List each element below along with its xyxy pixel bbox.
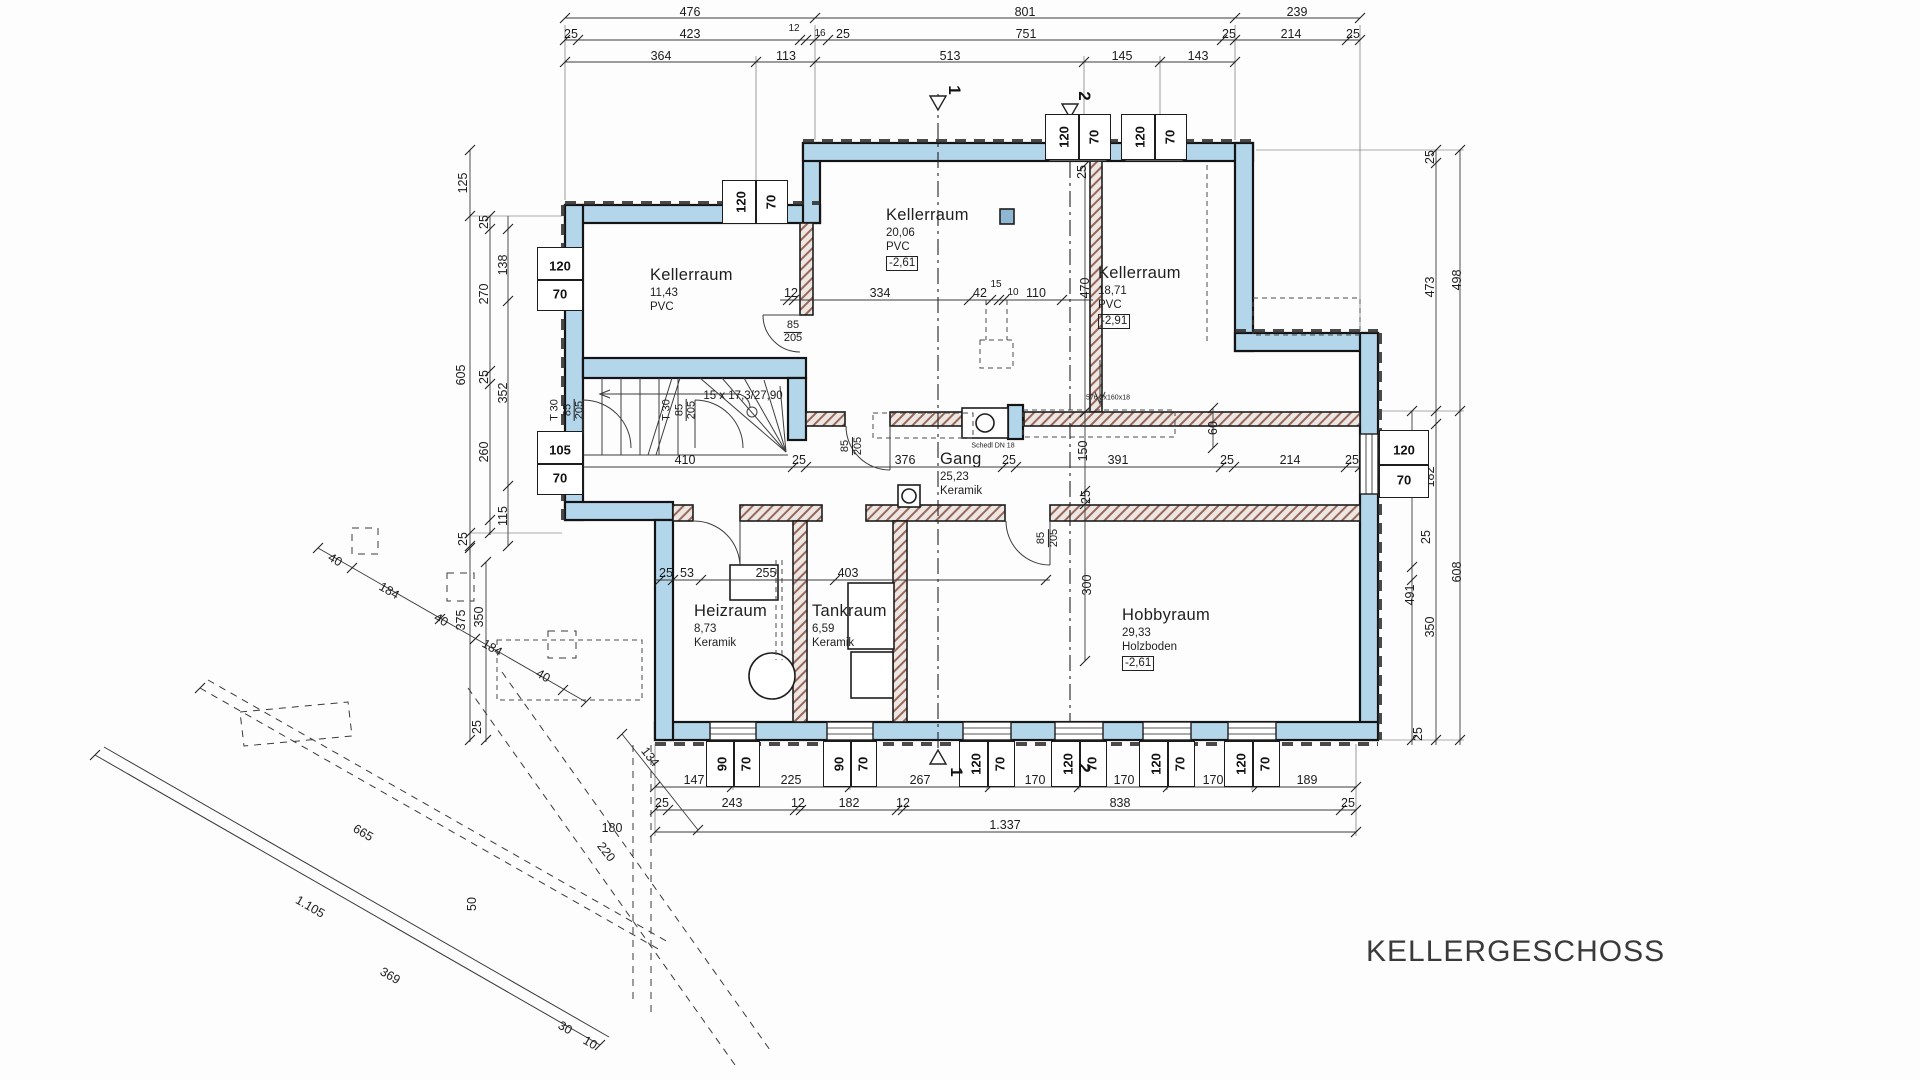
room-area: 29,33 (1122, 627, 1210, 639)
floor-plan-drawing (0, 0, 1920, 1080)
door-size-label: 85205 (1036, 529, 1060, 547)
room-label: Tankraum6,59Keramik (812, 602, 887, 649)
interior-walls (673, 161, 1360, 722)
window-glazing (565, 143, 1378, 740)
dimension-label: 110 (1026, 287, 1046, 300)
dimension-label: 364 (651, 50, 672, 63)
room-name: Kellerraum (650, 266, 733, 285)
dimension-label: 25 (478, 370, 491, 384)
window-size-tag: 12070 (1139, 741, 1195, 787)
dimension-label: 608 (1451, 562, 1464, 583)
room-level-badge: -2,61 (886, 256, 918, 271)
room-name: Heizraum (694, 602, 767, 621)
dimension-label: 25 (1341, 797, 1355, 810)
window-width-label: 120 (968, 753, 983, 775)
dimension-label: 838 (1110, 797, 1131, 810)
dimension-label: 53 (680, 567, 694, 580)
dimension-label: 476 (680, 6, 701, 19)
room-floor: Holzboden (1122, 641, 1210, 653)
door-size-label: 85205 (784, 320, 802, 344)
door-width: 85 (784, 320, 802, 332)
dimension-label: 150 (1077, 441, 1090, 462)
dimension-label: 180 (602, 822, 623, 835)
dimension-label: 25 (1420, 530, 1433, 544)
window-size-tag: 12070 (537, 247, 583, 311)
door-width: 85 (1036, 529, 1048, 547)
dimension-label: 352 (497, 383, 510, 404)
room-name: Tankraum (812, 602, 887, 621)
room-area: 11,43 (650, 287, 733, 299)
room-floor: Keramik (812, 637, 887, 649)
window-width-label: 120 (1060, 753, 1075, 775)
annotation-text: Schedl DN 18 (971, 443, 1014, 450)
window-height-label: 70 (1173, 757, 1188, 771)
section-marker-label: 1 (944, 85, 964, 94)
dimension-label: 25 (792, 454, 806, 467)
door-height: 205 (686, 399, 699, 421)
room-level-badge: -2,91 (1098, 314, 1130, 329)
dimension-label: 170 (1025, 774, 1046, 787)
dimension-label: 25 (478, 215, 491, 229)
window-height-label: 70 (553, 287, 567, 302)
window-size-tag: 12070 (1224, 741, 1280, 787)
window-width-label: 120 (1133, 126, 1148, 148)
dimension-label: 12 (896, 797, 910, 810)
window-width-label: 90 (832, 757, 847, 771)
dimension-label: 255 (756, 567, 777, 580)
window-tag-divider (1380, 464, 1428, 466)
dimension-label: 12 (788, 24, 799, 34)
dimension-label: 473 (1424, 277, 1437, 298)
door-width: 85 (562, 399, 574, 421)
window-tag-divider (755, 181, 757, 223)
dimension-label: 25 (564, 28, 578, 41)
room-name: Kellerraum (1098, 264, 1181, 283)
dimension-label: 143 (1188, 50, 1209, 63)
window-width-label: 90 (715, 757, 730, 771)
dimension-label: 214 (1281, 28, 1302, 41)
annotation-text: 576 2x160x18 (1086, 395, 1130, 402)
window-height-label: 70 (855, 757, 870, 771)
window-tag-divider (538, 463, 582, 465)
dimension-label: 267 (910, 774, 931, 787)
window-size-tag: 9070 (706, 741, 760, 787)
room-level-badge: -2,61 (1122, 656, 1154, 671)
dimension-label: 376 (895, 454, 916, 467)
dimension-label: 25 (1424, 150, 1437, 164)
window-height-label: 70 (553, 471, 567, 486)
window-size-tag: 12070 (1379, 430, 1429, 498)
window-size-tag: 9070 (823, 741, 877, 787)
room-label: Hobbyraum29,33Holzboden-2,61 (1122, 606, 1210, 671)
room-area: 25,23 (940, 471, 982, 483)
window-tag-divider (1154, 115, 1156, 159)
door-height: 205 (1048, 529, 1061, 547)
dimension-label: 260 (478, 442, 491, 463)
dimension-label: 801 (1015, 6, 1036, 19)
room-floor: PVC (886, 241, 969, 253)
room-floor: PVC (1098, 299, 1181, 311)
dimension-label: 403 (838, 567, 859, 580)
room-floor: PVC (650, 301, 733, 313)
dimension-label: 334 (870, 287, 891, 300)
door-height: 205 (852, 437, 865, 455)
window-height-label: 70 (1162, 130, 1177, 144)
dimension-label: 25 (836, 28, 850, 41)
dimension-label: 25 (659, 567, 673, 580)
dimension-label: 12 (791, 797, 805, 810)
window-tag-divider (1078, 115, 1080, 159)
dimension-label: 391 (1108, 454, 1129, 467)
dimension-label: 10 (1007, 288, 1018, 298)
section-marker-label: 2 (1074, 91, 1094, 100)
door-size-label: T 3085205 (662, 399, 699, 421)
dimension-label: 170 (1114, 774, 1135, 787)
dimension-label: 350 (1424, 617, 1437, 638)
door-size-label: 85205 (840, 437, 864, 455)
dimension-label: 147 (684, 774, 705, 787)
room-floor: Keramik (694, 637, 767, 649)
window-width-label: 120 (1057, 126, 1072, 148)
dimension-label: 498 (1451, 270, 1464, 291)
dimension-label: 60 (1207, 421, 1220, 435)
window-tag-divider (1167, 742, 1169, 786)
window-tag-divider (538, 279, 582, 281)
window-size-tag: 12070 (722, 180, 788, 224)
dimension-label: 12 (784, 287, 798, 300)
window-width-label: 120 (549, 258, 571, 273)
dimension-label: 138 (497, 255, 510, 276)
dimension-label: 25 (471, 720, 484, 734)
dimension-label: 25 (1076, 165, 1089, 179)
exterior-walls (565, 143, 1378, 740)
dimension-label: 375 (455, 610, 468, 631)
dimension-label: 25 (1002, 454, 1016, 467)
room-label: Kellerraum11,43PVC (650, 266, 733, 313)
window-tag-divider (733, 742, 735, 786)
dimension-label: 605 (455, 365, 468, 386)
door-width: 85 (840, 437, 852, 455)
room-label: Gang25,23Keramik (940, 450, 982, 497)
dimension-label: 270 (478, 284, 491, 305)
room-name: Gang (940, 450, 982, 469)
dimension-label: 491 (1404, 585, 1417, 606)
door-type: T 30 (550, 399, 562, 421)
dimension-label: 25 (1222, 28, 1236, 41)
dimension-label: 25 (1220, 454, 1234, 467)
dimension-label: 115 (497, 506, 510, 526)
section-line-1 (930, 94, 946, 764)
window-size-tag: 12070 (1121, 114, 1187, 160)
dimension-label: 145 (1112, 50, 1133, 63)
door-height: 205 (574, 399, 587, 421)
door-size-label: T 3085205 (550, 399, 587, 421)
door-type: T 30 (662, 399, 674, 421)
window-height-label: 70 (1397, 472, 1411, 487)
dimension-label: 182 (839, 797, 860, 810)
dimension-label: 170 (1203, 774, 1224, 787)
room-name: Hobbyraum (1122, 606, 1210, 625)
dimension-label: 225 (781, 774, 802, 787)
window-height-label: 70 (738, 757, 753, 771)
dimension-label: 50 (466, 897, 479, 911)
dimension-label: 214 (1280, 454, 1301, 467)
room-area: 6,59 (812, 623, 887, 635)
dimension-label: 42 (973, 287, 987, 300)
window-tag-divider (850, 742, 852, 786)
dimension-label: 25 (655, 797, 669, 810)
window-height-label: 70 (1258, 757, 1273, 771)
dimension-ticks (90, 13, 1465, 1050)
floor-plan-sheet: 4768012392542312162575125214253641135131… (0, 0, 1920, 1080)
section-marker-label: 1 (946, 767, 966, 776)
dimension-label: 25 (1412, 727, 1425, 741)
dimension-label: 25 (1080, 490, 1093, 504)
dimension-label: 300 (1081, 575, 1094, 596)
dimension-label: 470 (1079, 278, 1092, 299)
window-width-label: 105 (549, 442, 571, 457)
window-width-label: 120 (734, 191, 749, 213)
dimension-label: 125 (457, 173, 470, 194)
dimension-label: 350 (473, 607, 486, 628)
dimension-label: 15 (990, 280, 1001, 290)
dimension-label: 25 (1346, 28, 1360, 41)
window-size-tag: 12070 (1045, 114, 1111, 160)
dimension-label: 113 (776, 50, 796, 63)
room-area: 8,73 (694, 623, 767, 635)
window-height-label: 70 (763, 195, 778, 209)
dimension-label: 513 (940, 50, 961, 63)
room-area: 20,06 (886, 227, 969, 239)
dimension-label: 25 (457, 532, 470, 546)
dimension-label: 239 (1287, 6, 1308, 19)
room-label: Kellerraum20,06PVC-2,61 (886, 206, 969, 271)
window-tag-divider (1252, 742, 1254, 786)
room-label: Heizraum8,73Keramik (694, 602, 767, 649)
section-marker-label: 2 (1074, 763, 1094, 772)
window-size-tag: 12070 (959, 741, 1015, 787)
window-size-tag: 10570 (537, 431, 583, 495)
window-width-label: 120 (1233, 753, 1248, 775)
dimension-label: 189 (1297, 774, 1318, 787)
room-label: Kellerraum18,71PVC-2,91 (1098, 264, 1181, 329)
dimension-label: 243 (722, 797, 743, 810)
dimension-label: 16 (814, 29, 825, 39)
window-height-label: 70 (1086, 130, 1101, 144)
window-width-label: 120 (1148, 753, 1163, 775)
door-width: 85 (674, 399, 686, 421)
annotation-text: 15 x 17,3/27,90 (703, 390, 782, 402)
dimension-label: 423 (680, 28, 701, 41)
dimension-label: 25 (1345, 454, 1359, 467)
room-name: Kellerraum (886, 206, 969, 225)
room-floor: Keramik (940, 485, 982, 497)
dimension-label: 751 (1016, 28, 1037, 41)
room-area: 18,71 (1098, 285, 1181, 297)
window-tag-divider (987, 742, 989, 786)
dimension-label: 410 (675, 454, 696, 467)
dimension-label: 1.337 (989, 819, 1020, 832)
window-width-label: 120 (1393, 443, 1415, 458)
window-height-label: 70 (993, 757, 1008, 771)
drawing-title: KELLERGESCHOSS (1366, 935, 1665, 969)
door-height: 205 (784, 332, 802, 345)
section-line-2 (1062, 104, 1078, 760)
